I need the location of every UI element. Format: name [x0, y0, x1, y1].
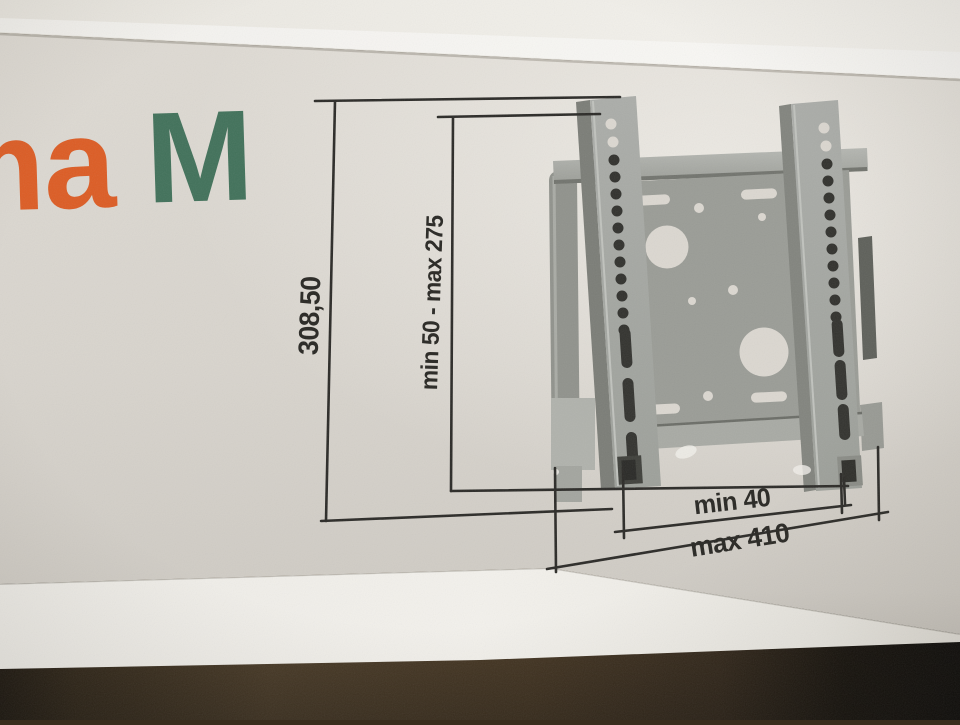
packaging-photo: ma M	[0, 0, 960, 720]
photo-grain	[0, 0, 960, 720]
scene-svg: ma M	[0, 0, 960, 720]
